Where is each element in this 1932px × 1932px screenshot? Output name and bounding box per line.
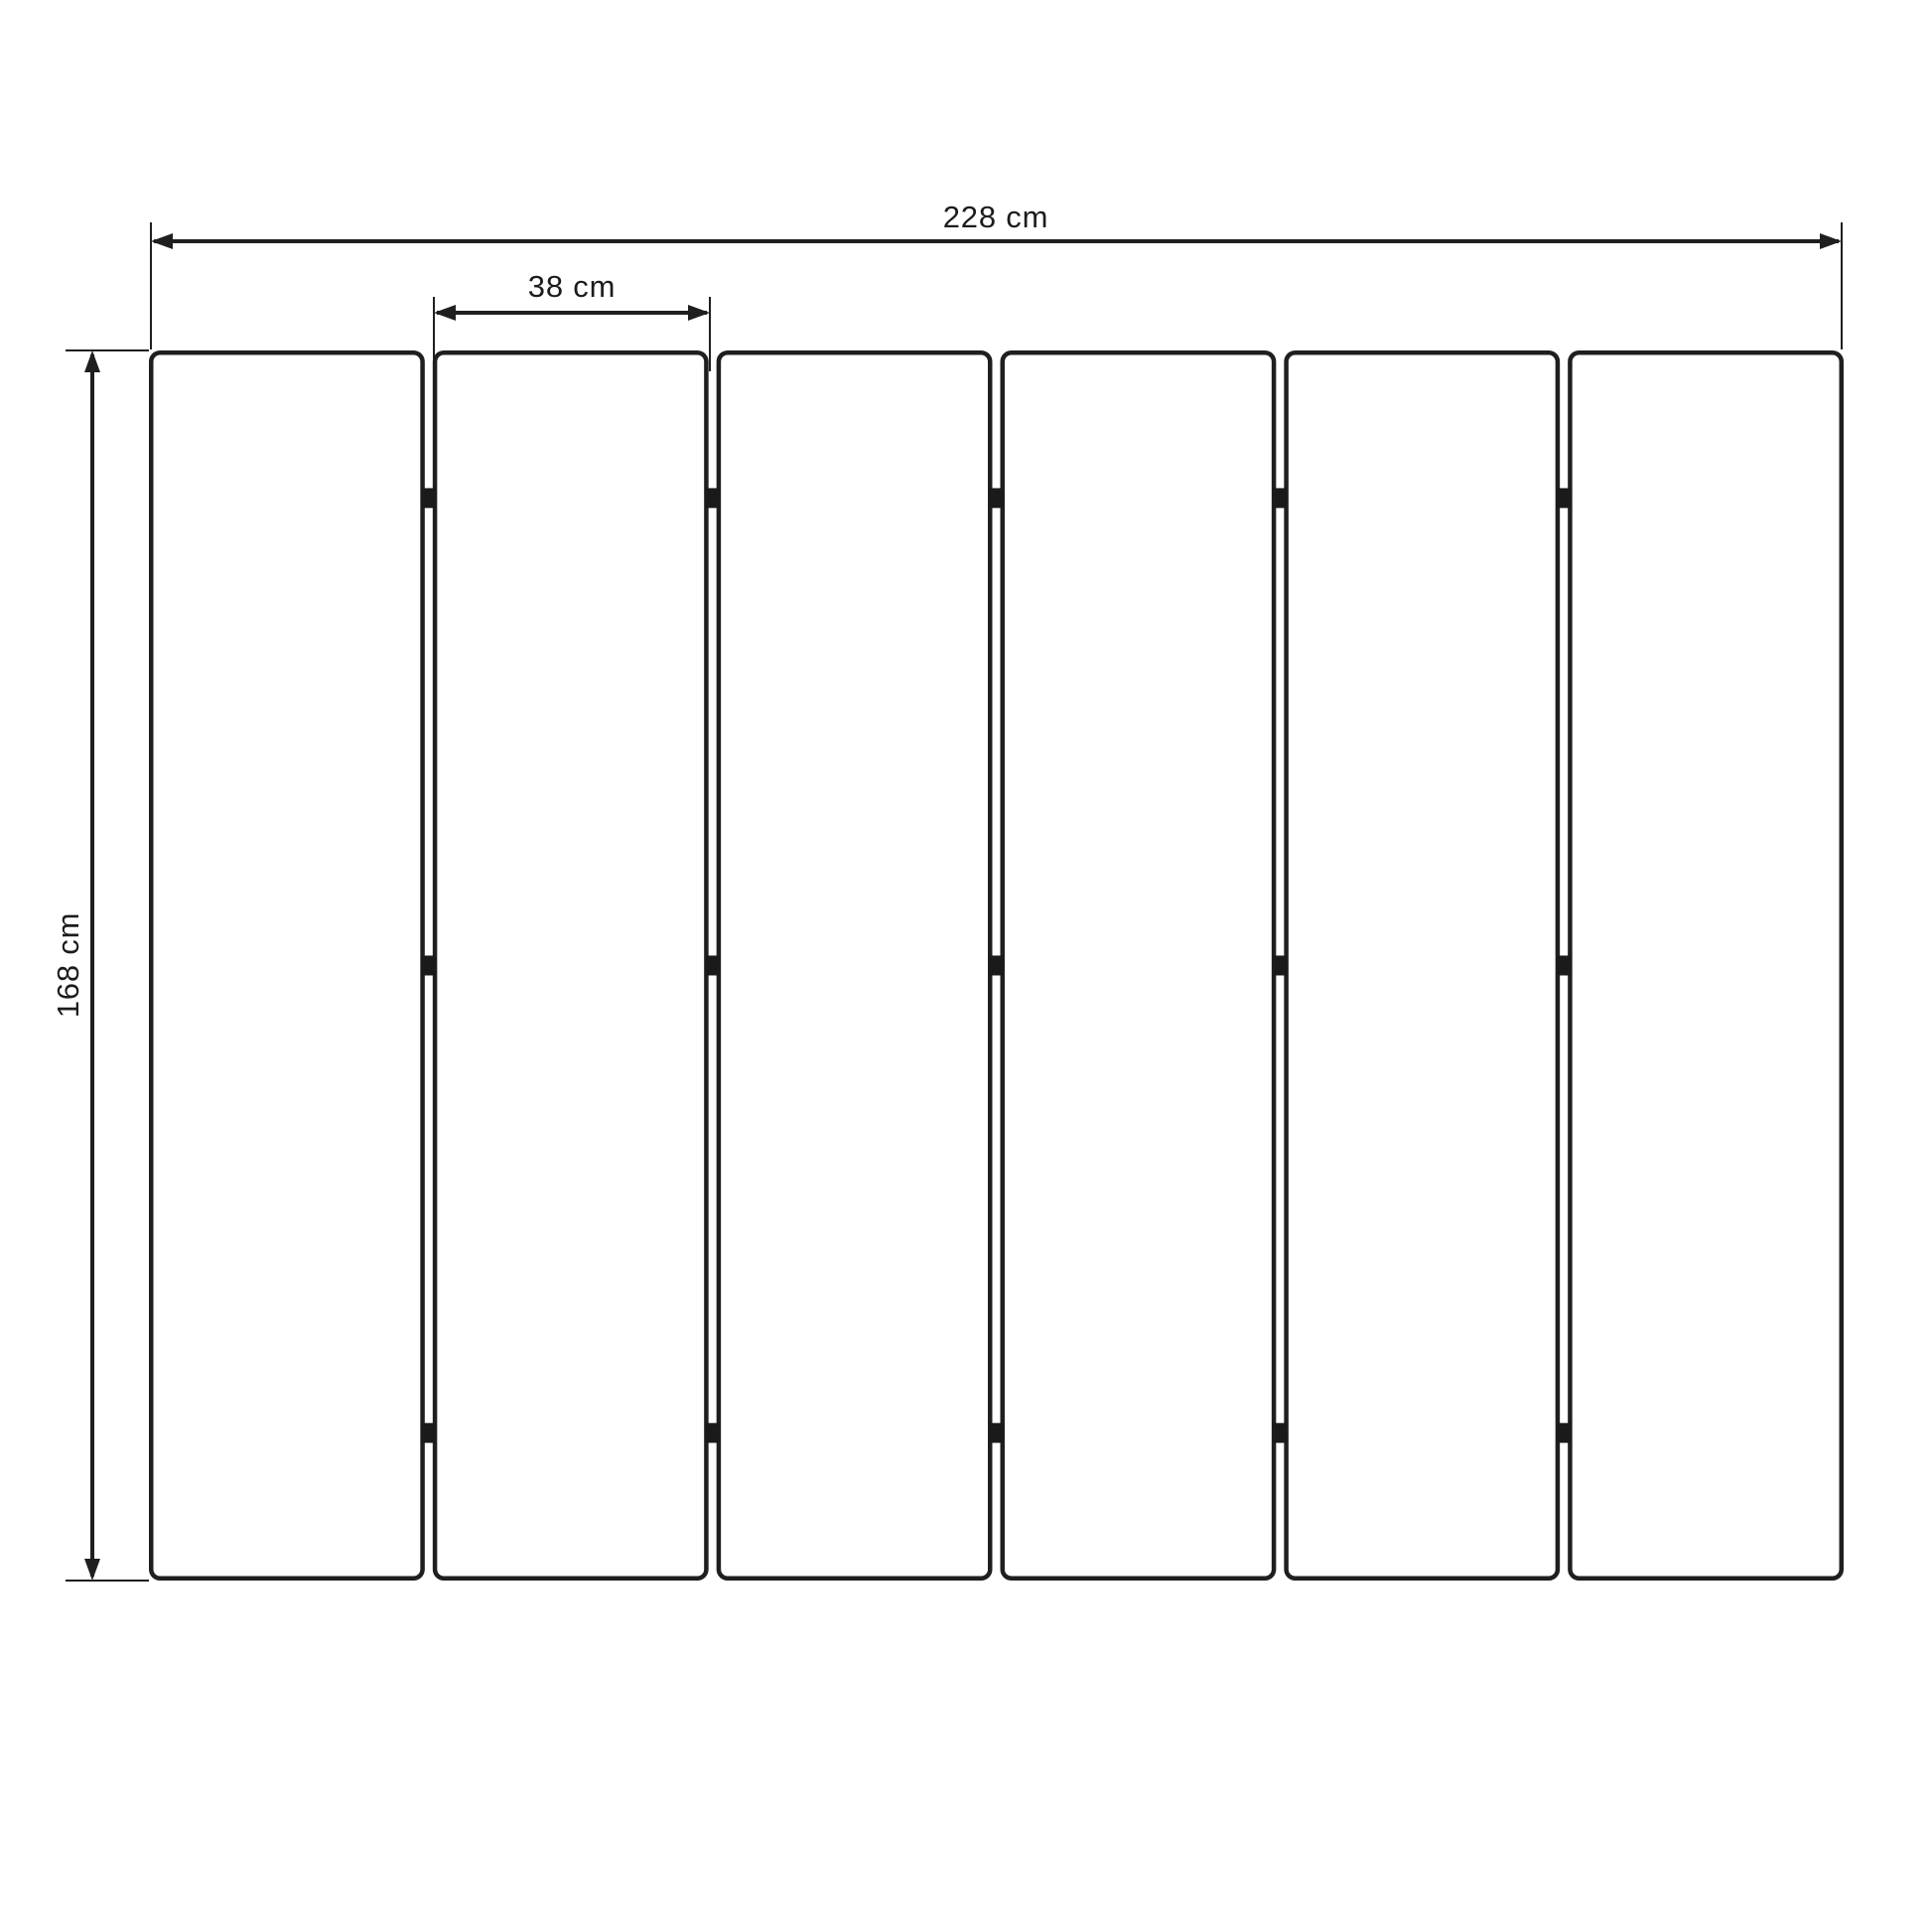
panel-6 [1570,352,1841,1579]
arrowhead-down-icon [84,1559,100,1581]
hinge-connector [422,956,436,976]
hinge-connector [1557,488,1571,508]
arrowhead-left-icon [151,233,173,249]
panel-5 [1287,352,1558,1579]
total-width-label: 228 cm [943,200,1048,234]
hinge-connector [990,1423,1004,1443]
arrowhead-right-icon [1820,233,1842,249]
panel-4 [1003,352,1274,1579]
arrowhead-right-icon [688,305,710,321]
height-label: 168 cm [51,912,85,1018]
arrowhead-up-icon [84,350,100,372]
hinge-connector [422,488,436,508]
hinge-connector [1273,1423,1287,1443]
hinge-connector [1557,956,1571,976]
dimension-total-width: 228 cm [151,200,1842,349]
panel-1 [151,352,422,1579]
hinge-connector [706,956,720,976]
hinge-connector [1273,956,1287,976]
panel-width-label: 38 cm [528,269,616,304]
hinge-connector [706,1423,720,1443]
panel-dimension-diagram: 228 cm 38 cm 168 cm [0,0,1932,1932]
diagram-svg: 228 cm 38 cm 168 cm [0,0,1932,1932]
hinge-connector [706,488,720,508]
arrowhead-left-icon [434,305,456,321]
panel-2 [435,352,706,1579]
hinge-connector [990,488,1004,508]
hinge-connector [990,956,1004,976]
hinge-connector [1557,1423,1571,1443]
panel-3 [719,352,990,1579]
hinge-connector [422,1423,436,1443]
hinge-connector [1273,488,1287,508]
dimension-height: 168 cm [51,350,149,1581]
